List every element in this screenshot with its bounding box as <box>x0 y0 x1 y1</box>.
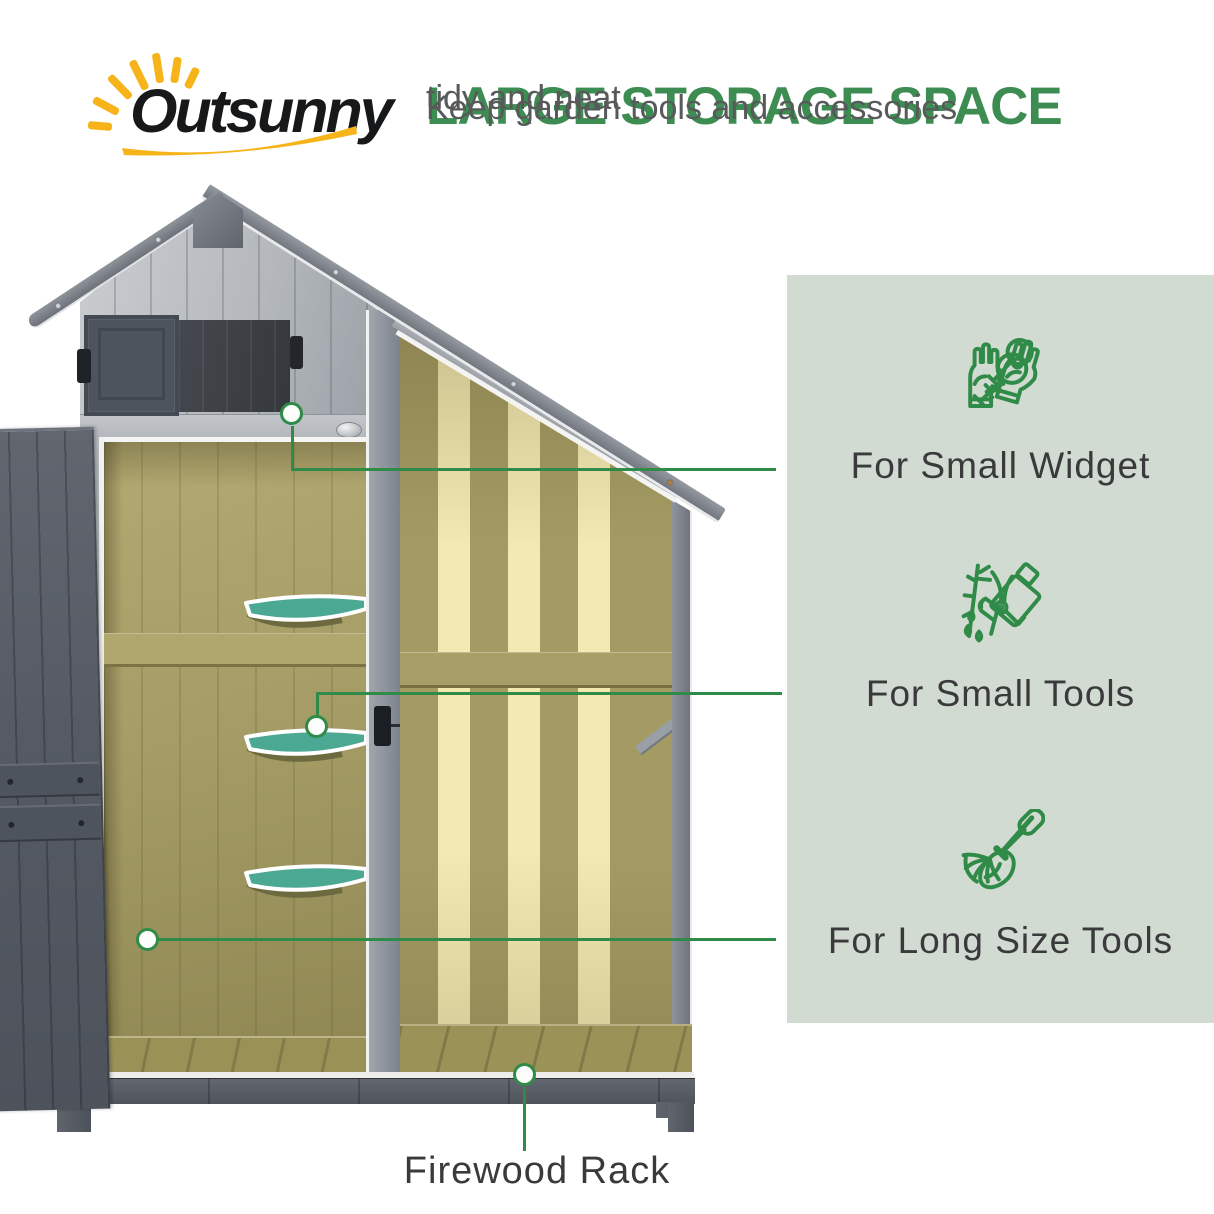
shutter-panel <box>98 328 165 400</box>
callout-line-small-widget <box>291 426 294 470</box>
feature-label-small-widget: For Small Widget <box>787 445 1214 487</box>
callout-marker-small-widget <box>280 402 303 425</box>
product-infographic: Outsunny LARGE STORAGE SPACE Keep garden… <box>0 0 1214 1214</box>
door-latch <box>374 706 391 746</box>
window-latch <box>290 336 303 369</box>
feature-panel: For Small Widget For Small Tools <box>787 275 1214 1023</box>
interior-rail <box>400 652 692 688</box>
callout-line-small-tools <box>316 692 782 695</box>
feature-label-small-tools: For Small Tools <box>787 673 1214 715</box>
feature-label-long-tools: For Long Size Tools <box>787 920 1214 962</box>
subtitle-line-2: tidy and neat <box>426 76 621 120</box>
shutter-hinge <box>77 349 91 383</box>
callout-line-firewood <box>523 1087 526 1151</box>
interior-rail <box>103 633 368 667</box>
shed-open-door <box>0 427 110 1112</box>
center-pillar <box>366 310 402 1080</box>
right-post <box>672 498 692 1080</box>
brand-logo: Outsunny <box>92 50 432 185</box>
screw-icon <box>331 267 341 277</box>
firewood-rack-label: Firewood Rack <box>404 1150 670 1193</box>
callout-marker-long-tools <box>136 928 159 951</box>
corner-shelf <box>240 590 372 634</box>
shovel-icon <box>957 809 1045 897</box>
shed-base <box>58 1078 695 1104</box>
shed-window-shutter <box>84 315 179 416</box>
screw-icon <box>665 478 675 488</box>
callout-line-small-widget <box>291 468 776 471</box>
corner-shelf <box>240 860 372 904</box>
screw-icon <box>153 235 163 245</box>
callout-marker-firewood <box>513 1063 536 1086</box>
screw-icon <box>8 822 14 828</box>
shed-window-opening <box>178 320 290 412</box>
door-rail <box>0 762 100 799</box>
screw-icon <box>53 301 63 311</box>
keys-icon <box>957 329 1045 417</box>
watering-can-icon <box>957 559 1045 647</box>
callout-marker-small-tools <box>305 715 328 738</box>
frame-trim <box>103 437 368 442</box>
door-rail <box>0 804 101 843</box>
screw-icon <box>78 820 84 826</box>
shed-leg-right-foot <box>668 1102 694 1132</box>
screw-icon <box>509 379 519 389</box>
firewood-compartment <box>400 330 692 1080</box>
callout-line-long-tools <box>148 938 776 941</box>
metal-knob <box>336 422 362 438</box>
screw-icon <box>77 777 83 783</box>
screw-icon <box>7 779 13 785</box>
logo-swoosh <box>118 122 362 160</box>
interior-shadow <box>103 441 368 487</box>
sun-ray-icon <box>88 121 113 131</box>
interior-shadow <box>400 330 692 1080</box>
sun-ray-icon <box>92 96 120 116</box>
